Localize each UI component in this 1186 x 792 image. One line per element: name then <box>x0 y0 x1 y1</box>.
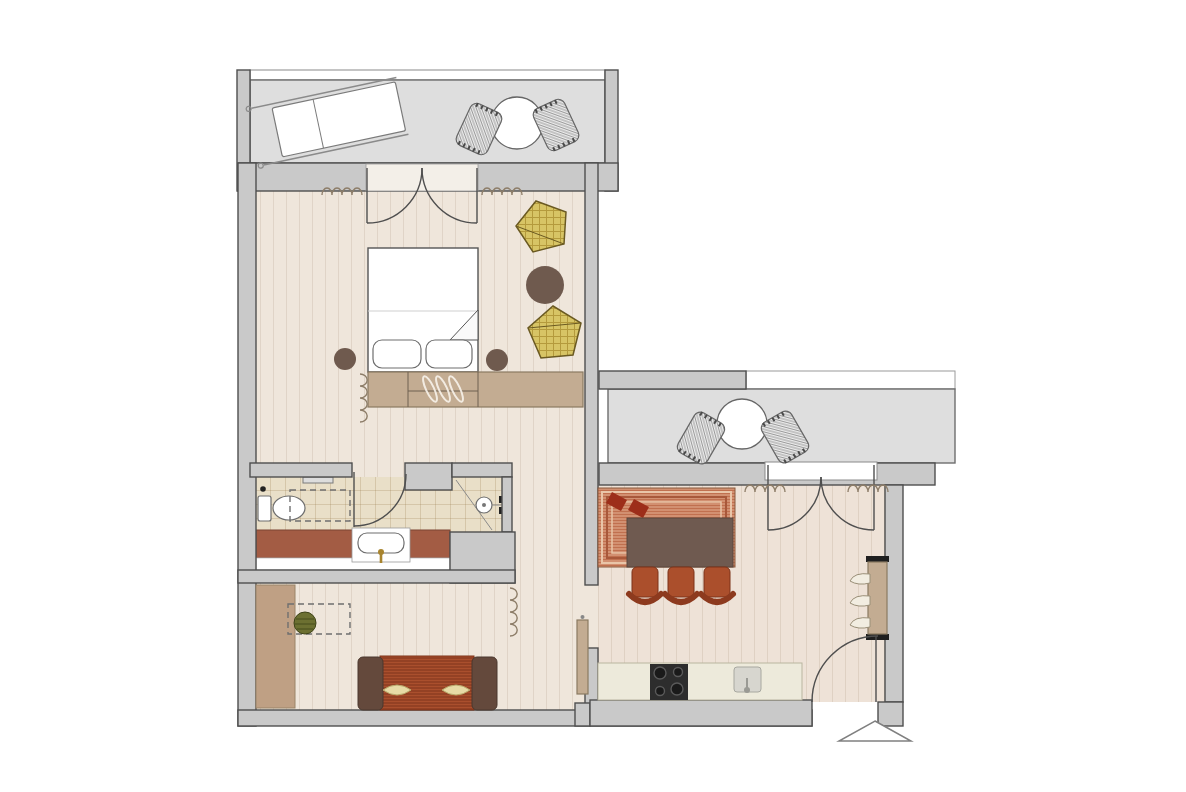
bathroom-wall-pier <box>405 463 452 490</box>
sliding-door-handle <box>581 615 585 619</box>
balcony-railing <box>746 371 955 389</box>
pillow <box>426 340 472 368</box>
burner-icon <box>656 687 665 696</box>
potted-plant <box>294 612 316 634</box>
dining-table <box>627 518 733 567</box>
coat-rack <box>868 562 887 634</box>
shower-drain-dot <box>482 503 486 507</box>
exterior-wall-kitchen-right <box>885 485 903 702</box>
nightstand <box>334 348 356 370</box>
toilet-tank <box>258 496 271 521</box>
sofa-armrest <box>472 657 497 710</box>
wall-bedroom-right <box>585 163 598 585</box>
sink-faucet-base <box>744 687 750 693</box>
toilet-roll-holder-icon <box>260 486 266 492</box>
dining-chairs <box>629 567 733 602</box>
dining-chair <box>668 567 694 597</box>
shower-wall-top <box>452 463 512 477</box>
pillow <box>373 340 421 368</box>
floor-plan <box>0 0 1186 792</box>
round-table <box>717 399 767 449</box>
wardrobe <box>368 372 583 407</box>
towel-rail <box>303 477 333 483</box>
round-side-table <box>526 266 564 304</box>
burner-icon <box>671 683 683 695</box>
kitchen-counter <box>598 663 802 700</box>
bathroom-wall-right <box>502 477 512 532</box>
floor-plan-canvas <box>0 0 1186 792</box>
burner-icon <box>674 668 683 677</box>
bathroom-wall-top <box>250 463 352 477</box>
bathroom-wall-bottom <box>238 570 515 583</box>
sofa-armrest <box>358 657 383 710</box>
dining-chair <box>632 567 658 597</box>
dining-chair <box>704 567 730 597</box>
faucet-spout <box>380 553 383 563</box>
coat-rack-cap <box>866 556 889 562</box>
wall-notch <box>575 703 590 726</box>
sofa <box>380 656 474 710</box>
toilet-bowl <box>273 496 305 520</box>
burner-icon <box>654 667 666 679</box>
exterior-wall-kitchen-bottom <box>590 700 812 726</box>
balcony-railing <box>250 70 605 80</box>
wall-stub-entrance <box>878 702 903 726</box>
sliding-door <box>577 620 588 694</box>
nightstand <box>486 349 508 371</box>
balcony-right-wall-top <box>599 371 746 389</box>
exterior-wall-left <box>238 163 256 726</box>
